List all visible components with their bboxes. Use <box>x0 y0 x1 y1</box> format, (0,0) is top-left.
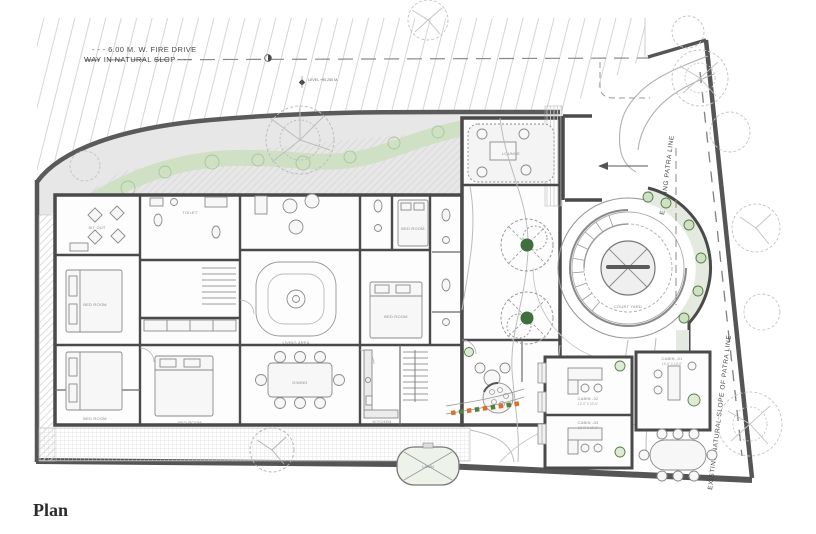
cabin01-label: CABIN -01 <box>662 356 683 361</box>
cabin03-dim: 12'-0" X 10'-0" <box>578 426 598 430</box>
cabin01-dim: 14'-0" X 10'-0" <box>662 362 682 366</box>
lawn-mound: LAWN <box>397 443 459 485</box>
room-label-court: COURT YARD <box>614 304 642 309</box>
entry-arrow-icon <box>598 162 648 170</box>
room-label-kitchen: KITCHEN <box>373 419 392 424</box>
room-label-lounge: LOUNGE <box>502 151 520 156</box>
room-label-bed5: BED ROOM <box>384 314 407 319</box>
room-label-bed1: BED ROOM <box>83 302 106 307</box>
page-title: Plan <box>33 500 68 520</box>
cabin02-dim: 12'-0" X 10'-0" <box>578 402 598 406</box>
room-label-dining: DINING <box>292 380 307 385</box>
fire-drive-label-2: WAY IN NATURAL SLOP - - - <box>84 55 192 64</box>
cabin02-label: CABIN -02 <box>578 396 599 401</box>
room-label-toilet: TOILET <box>182 210 197 215</box>
room-label-living: LIVING AREA <box>282 340 309 345</box>
fire-drive-label-1: - - - 6.00 M. W. FIRE DRIVE <box>92 45 197 54</box>
site-plan-sheet: - - - 6.00 M. W. FIRE DRIVE WAY IN NATUR… <box>0 0 816 534</box>
room-label-bed4: BED ROOM <box>401 226 424 231</box>
lawn-label: LAWN <box>422 464 434 469</box>
room-label-bed2: BED ROOM <box>83 416 106 421</box>
room-label-bed3: BED ROOM <box>178 420 201 425</box>
office-block: CABIN -02 12'-0" X 10'-0" CABIN -03 12'-… <box>538 352 717 481</box>
cabin03-label: CABIN -03 <box>578 420 599 425</box>
room-label-sitout: SIT OUT <box>88 225 105 230</box>
level-marker-label: LEVEL +90.250 M. <box>308 78 338 82</box>
site-plan-drawing: - - - 6.00 M. W. FIRE DRIVE WAY IN NATUR… <box>0 0 816 534</box>
